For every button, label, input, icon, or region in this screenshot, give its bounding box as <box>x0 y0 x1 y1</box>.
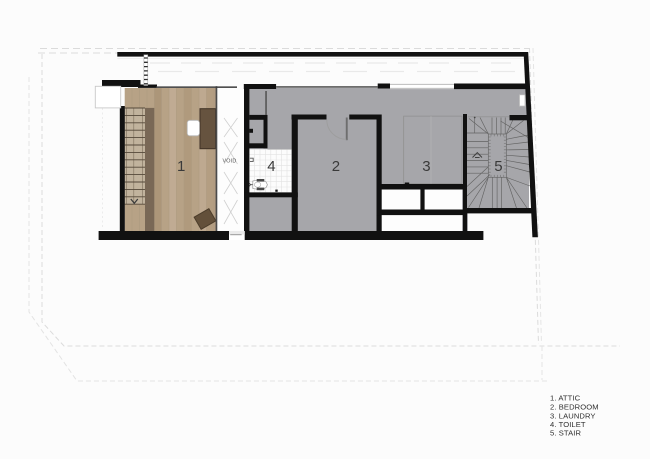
svg-text:VOID: VOID <box>223 159 237 165</box>
svg-text:5. STAIR: 5. STAIR <box>550 428 581 437</box>
svg-text:4: 4 <box>267 158 275 175</box>
svg-text:2. BEDROOM: 2. BEDROOM <box>550 403 599 412</box>
svg-text:5: 5 <box>494 158 502 175</box>
svg-text:3: 3 <box>422 158 430 175</box>
svg-text:2: 2 <box>332 158 340 175</box>
svg-text:1: 1 <box>177 158 185 175</box>
svg-text:1. ATTIC: 1. ATTIC <box>550 394 581 403</box>
